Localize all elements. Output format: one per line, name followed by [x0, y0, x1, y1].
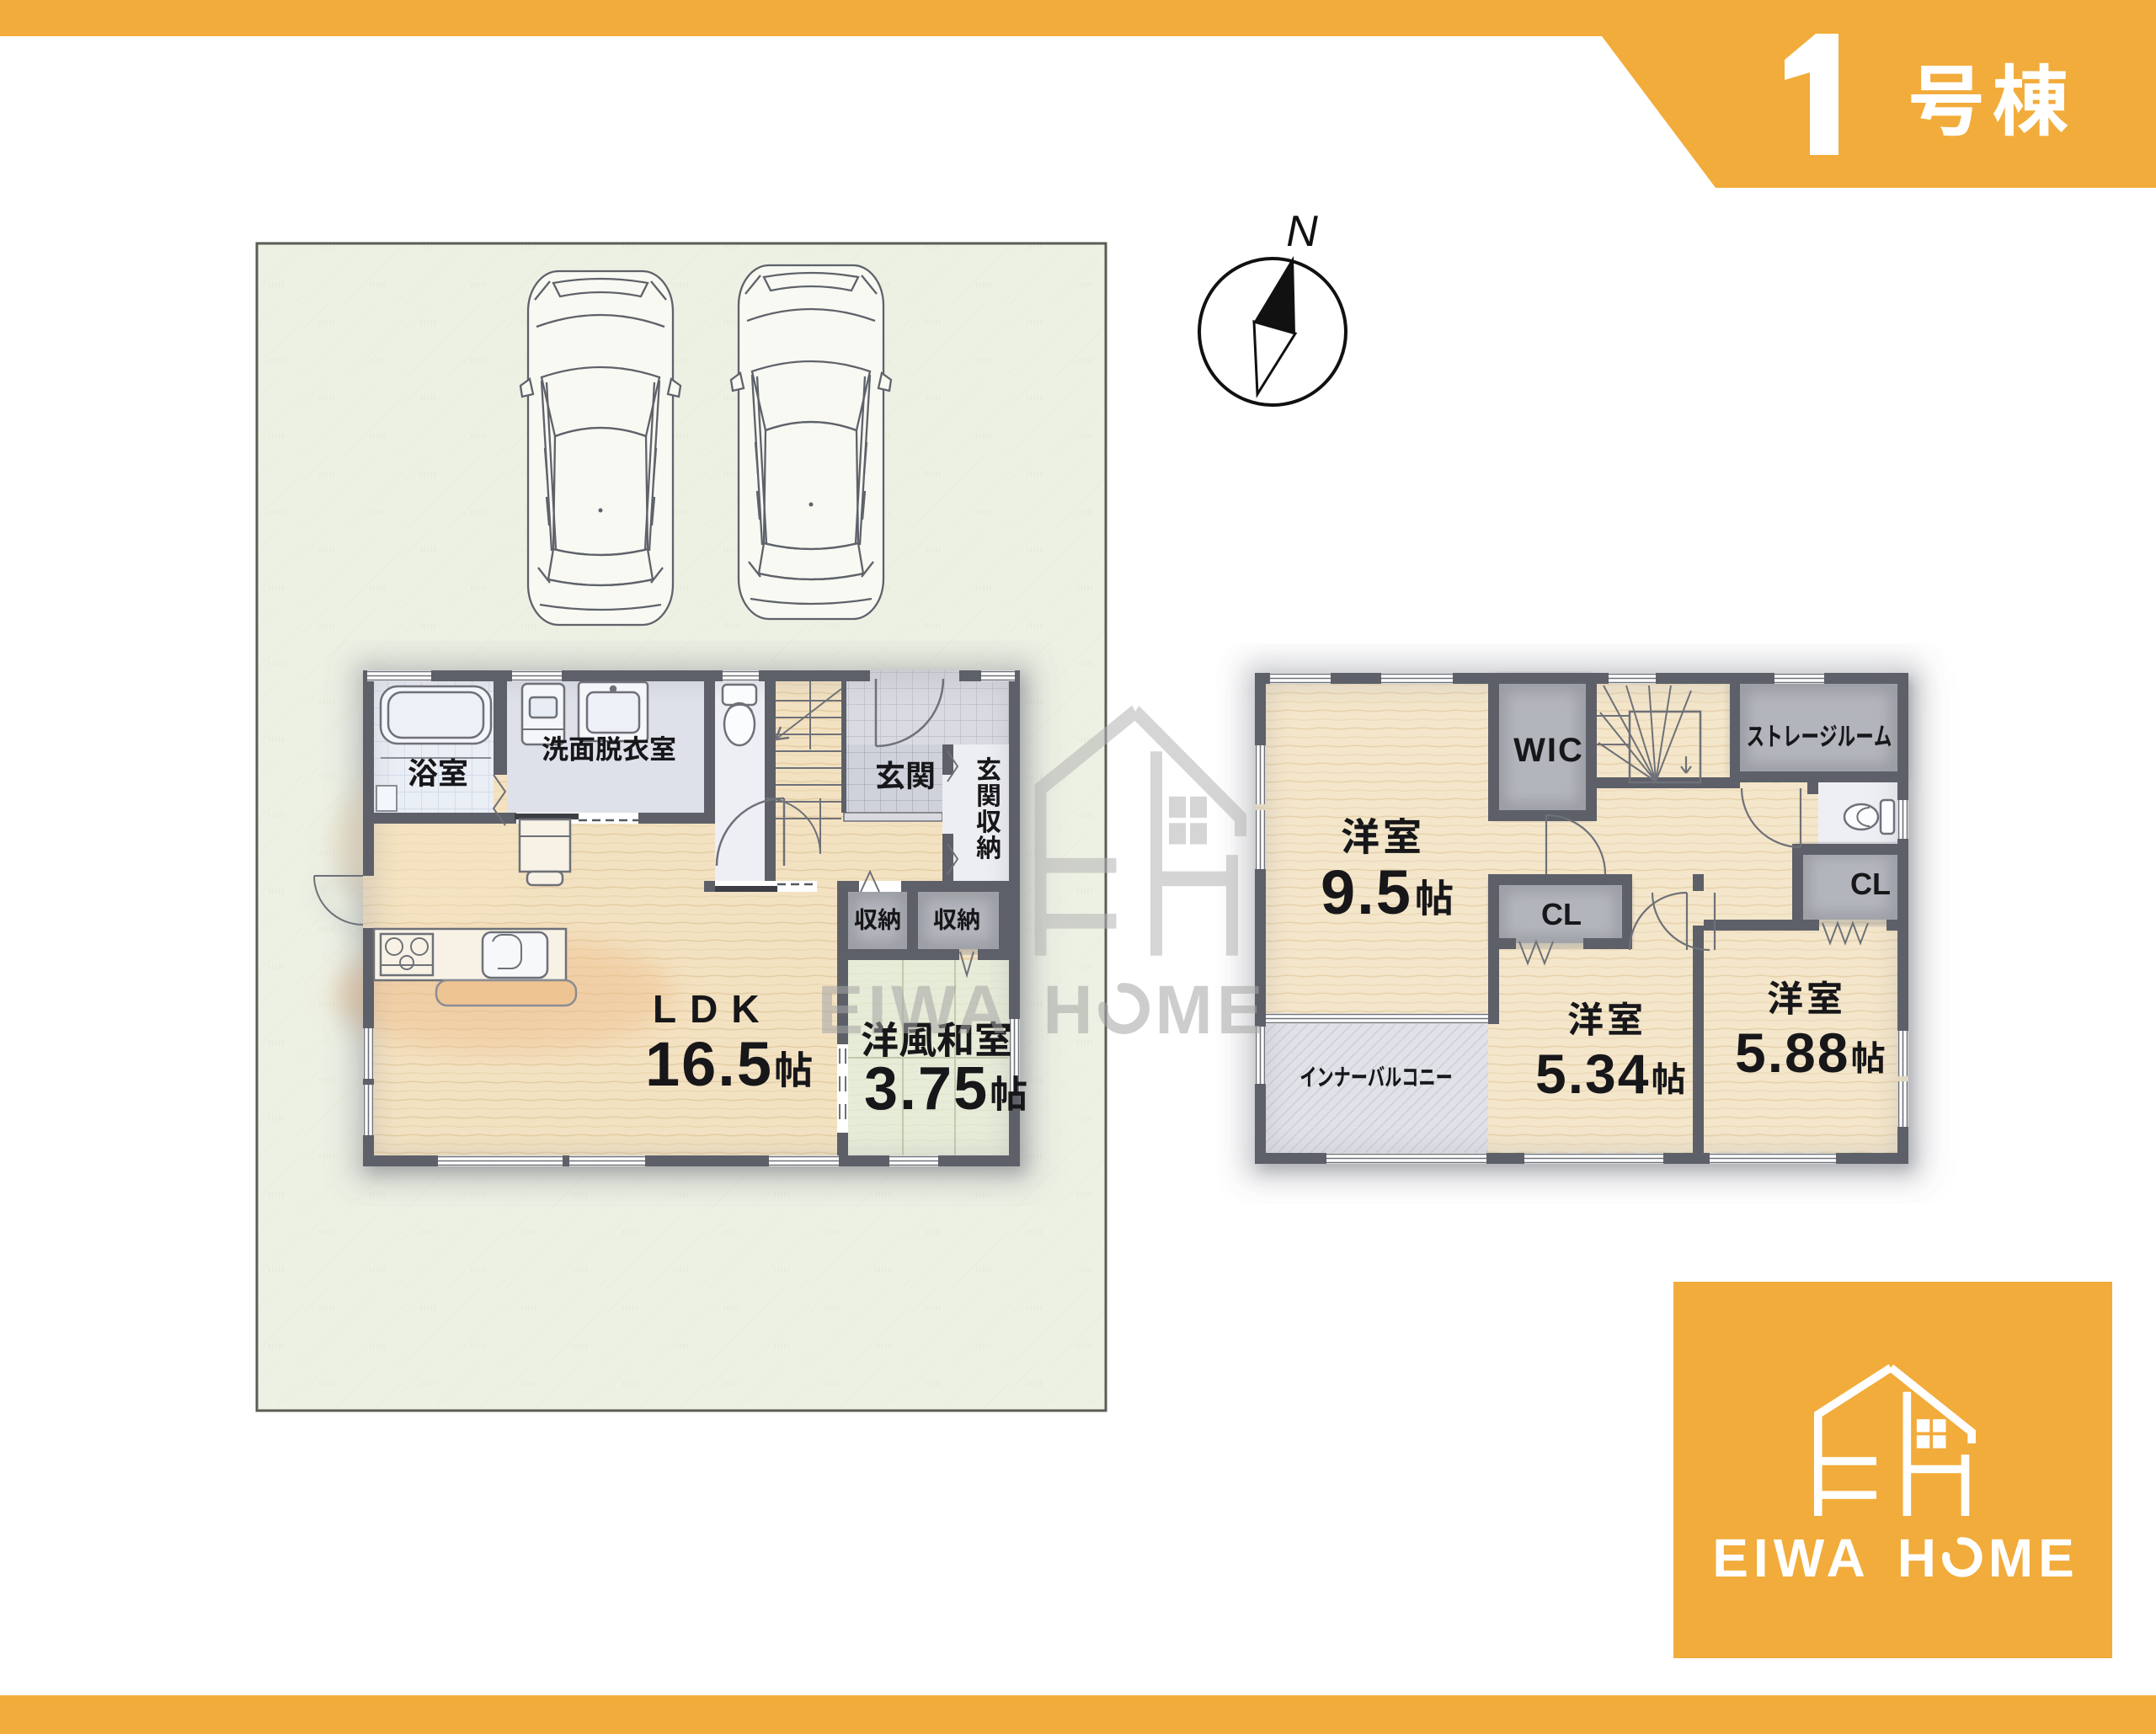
- svg-text:5.88: 5.88: [1735, 1022, 1849, 1084]
- svg-text:CL: CL: [1541, 897, 1582, 931]
- svg-text:LDK: LDK: [653, 987, 773, 1031]
- svg-text:H: H: [1043, 972, 1092, 1048]
- svg-text:CL: CL: [1850, 867, 1891, 901]
- svg-text:H: H: [1897, 1528, 1936, 1588]
- svg-text:16.5: 16.5: [645, 1029, 773, 1099]
- svg-text:5.34: 5.34: [1535, 1043, 1650, 1105]
- svg-text:3.75: 3.75: [864, 1055, 989, 1123]
- svg-text:EIWA: EIWA: [1712, 1528, 1870, 1588]
- svg-text:EIWA: EIWA: [818, 972, 1011, 1048]
- svg-text:WIC: WIC: [1513, 732, 1584, 769]
- svg-text:9.5: 9.5: [1321, 857, 1412, 927]
- svg-text:N: N: [1286, 207, 1318, 256]
- svg-text:ME: ME: [1155, 972, 1267, 1048]
- svg-text:ME: ME: [1988, 1528, 2079, 1588]
